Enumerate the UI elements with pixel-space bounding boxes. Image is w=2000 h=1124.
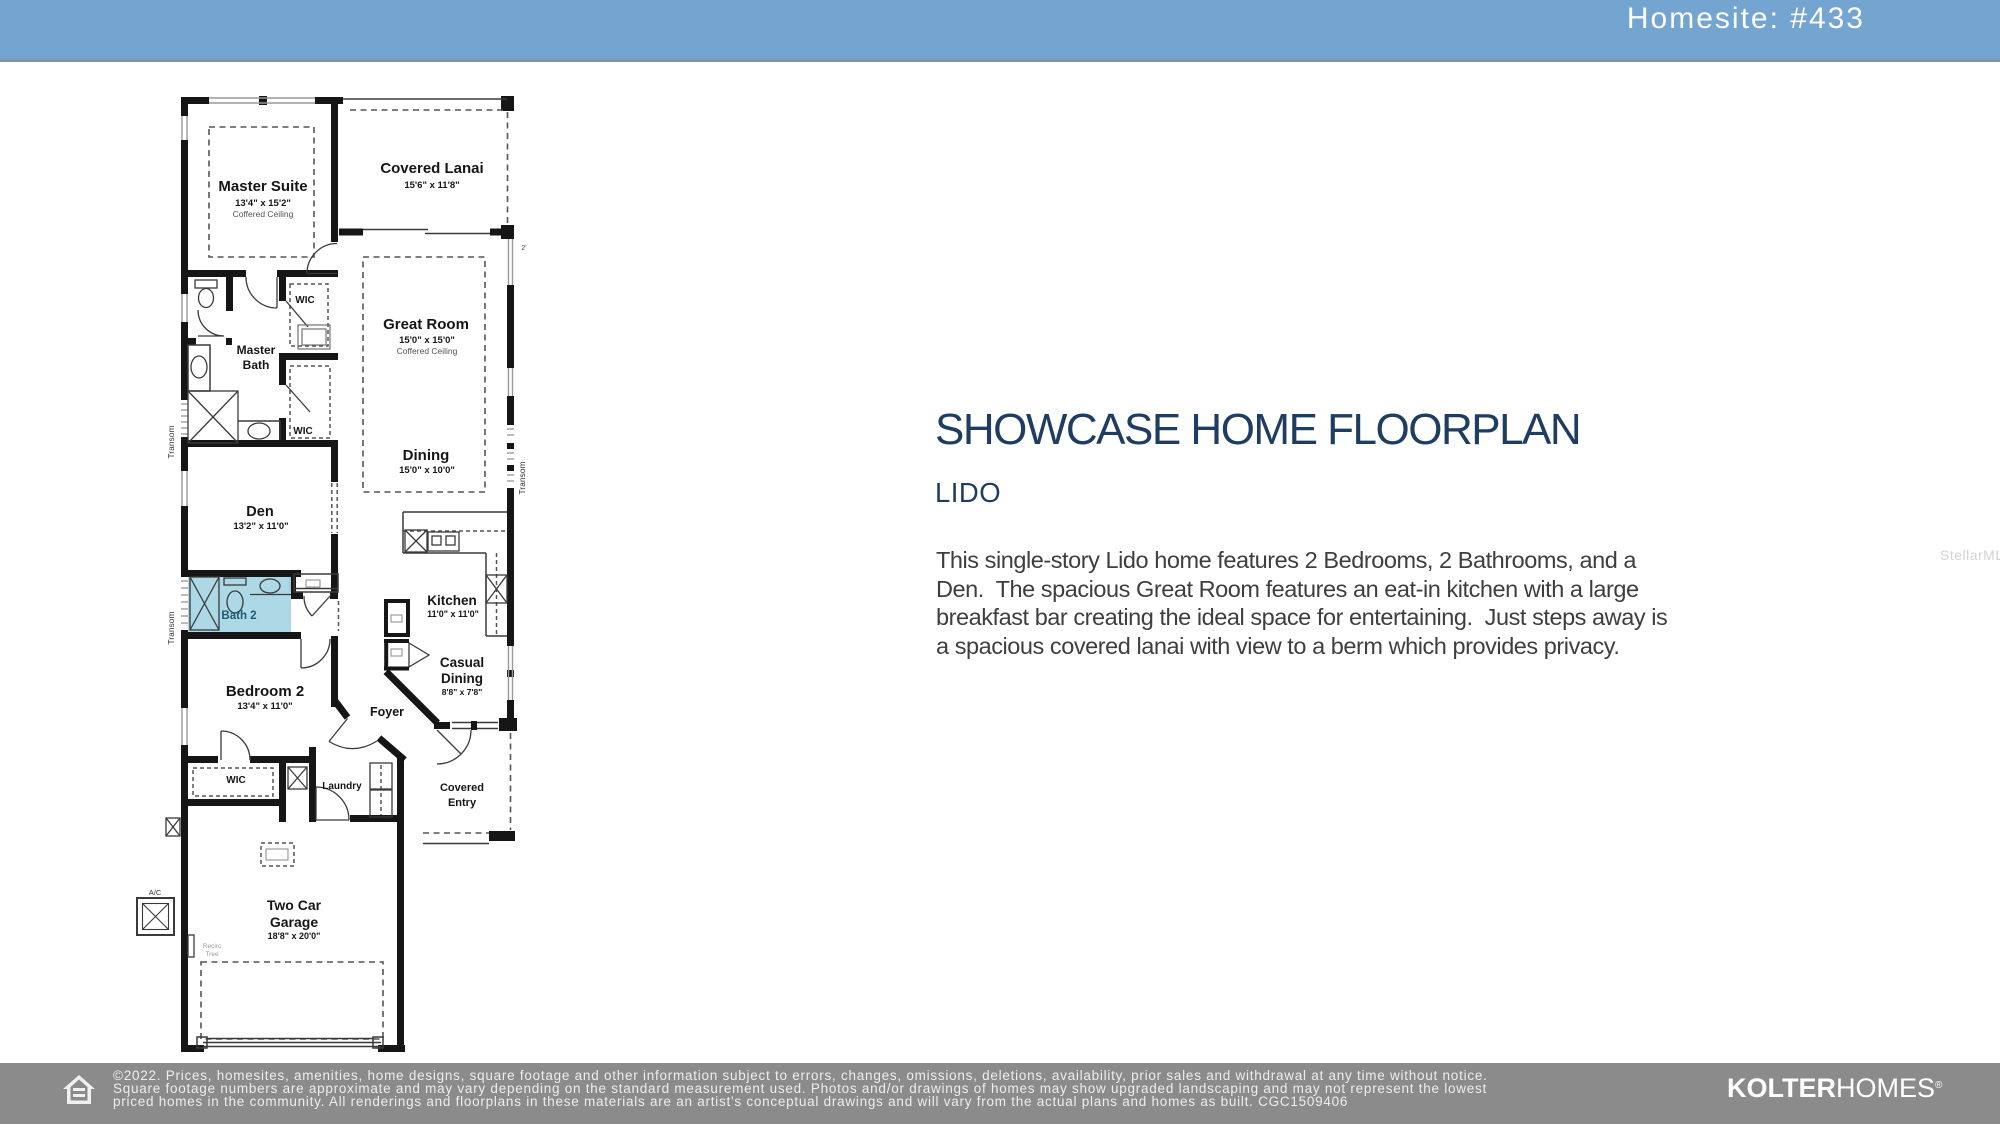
- svg-text:Bedroom 2: Bedroom 2: [226, 683, 304, 700]
- svg-text:Tree: Tree: [205, 951, 219, 958]
- svg-text:18'8" x 20'0": 18'8" x 20'0": [268, 931, 321, 941]
- svg-text:Den: Den: [246, 504, 273, 520]
- svg-text:8'8" x 7'8": 8'8" x 7'8": [442, 687, 482, 697]
- svg-text:Garage: Garage: [270, 914, 318, 930]
- svg-text:WIC: WIC: [293, 426, 312, 437]
- svg-text:Transom: Transom: [517, 461, 527, 494]
- svg-text:Bath 2: Bath 2: [221, 610, 256, 622]
- svg-text:Bath: Bath: [243, 358, 270, 372]
- svg-text:Foyer: Foyer: [370, 705, 404, 719]
- svg-text:A/C: A/C: [149, 888, 162, 897]
- svg-text:15'0" x 15'0": 15'0" x 15'0": [399, 335, 455, 346]
- svg-text:WIC: WIC: [295, 295, 314, 306]
- svg-text:2': 2': [521, 245, 526, 252]
- svg-text:Master: Master: [237, 343, 276, 357]
- svg-text:Coffered Ceiling: Coffered Ceiling: [397, 346, 458, 356]
- svg-text:WIC: WIC: [226, 775, 245, 786]
- svg-text:Covered: Covered: [440, 782, 484, 794]
- svg-text:13'4" x 15'2": 13'4" x 15'2": [235, 198, 291, 209]
- svg-text:Master Suite: Master Suite: [218, 178, 307, 195]
- svg-text:Recirc: Recirc: [203, 943, 222, 950]
- svg-text:Covered Lanai: Covered Lanai: [380, 160, 483, 177]
- svg-text:Kitchen: Kitchen: [427, 593, 477, 608]
- svg-text:Great Room: Great Room: [383, 316, 469, 333]
- svg-text:Two Car: Two Car: [267, 897, 322, 913]
- svg-text:15'0" x 10'0": 15'0" x 10'0": [399, 465, 455, 476]
- svg-text:Entry: Entry: [448, 797, 477, 809]
- svg-text:Casual: Casual: [440, 655, 484, 670]
- svg-text:15'6" x 11'8": 15'6" x 11'8": [404, 180, 459, 191]
- svg-text:Dining: Dining: [441, 671, 483, 686]
- svg-text:Coffered Ceiling: Coffered Ceiling: [233, 209, 294, 219]
- svg-text:13'2" x 11'0": 13'2" x 11'0": [233, 521, 288, 532]
- svg-text:11'0" x 11'0": 11'0" x 11'0": [427, 609, 479, 619]
- svg-text:Transom: Transom: [166, 425, 176, 458]
- svg-text:Laundry: Laundry: [322, 781, 362, 792]
- svg-text:Transom: Transom: [166, 611, 176, 644]
- svg-text:13'4" x 11'0": 13'4" x 11'0": [237, 701, 292, 712]
- svg-text:Dining: Dining: [403, 447, 450, 464]
